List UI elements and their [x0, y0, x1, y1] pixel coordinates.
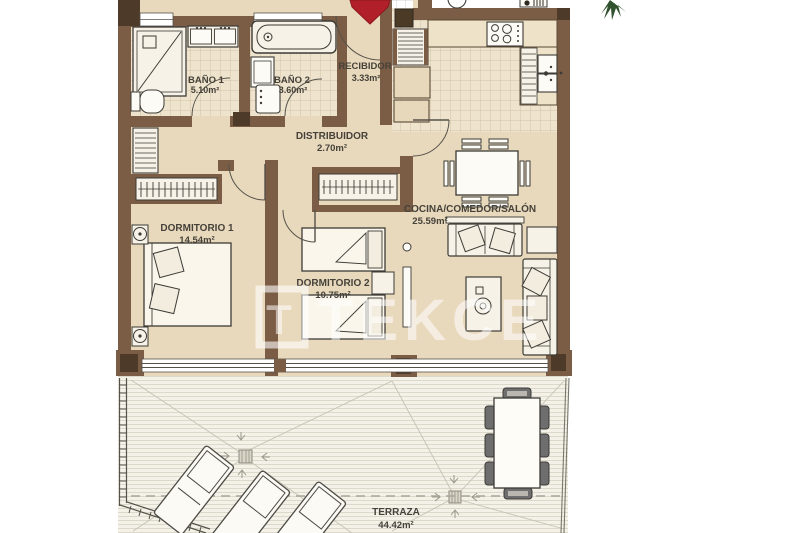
toilet — [251, 57, 274, 87]
sofa-two-seat — [448, 224, 522, 256]
floor-plan-screenshot: BAÑO 1 5.10m² BAÑO 2 3.60m² RECIBIDOR 3.… — [0, 0, 800, 533]
double-bed — [144, 243, 231, 326]
room-area-recibidor: 3.33m² — [352, 73, 381, 83]
pantry-shelves — [393, 29, 428, 65]
wall-fixture — [403, 243, 411, 251]
wardrobe — [319, 174, 397, 200]
watermark-logo-letter: T — [266, 296, 298, 343]
shower — [133, 27, 186, 96]
toilet — [131, 90, 164, 113]
laundry-sink-icon — [520, 0, 547, 7]
tall-cabinet — [395, 9, 413, 27]
nightstand — [132, 327, 148, 346]
drying-rack — [521, 48, 537, 104]
room-area-salon: 25.59m² — [412, 216, 447, 227]
wardrobe — [131, 174, 222, 204]
stairwell-floor — [392, 0, 413, 8]
room-label-terraza: TERRAZA — [372, 507, 420, 518]
outdoor-table — [494, 398, 540, 488]
drain-icon — [239, 450, 252, 463]
side-table — [527, 227, 557, 253]
floor-plan-canvas: BAÑO 1 5.10m² BAÑO 2 3.60m² RECIBIDOR 3.… — [0, 0, 800, 533]
room-label-dormitorio1: DORMITORIO 1 — [160, 223, 234, 234]
nightstand — [132, 225, 148, 244]
watermark: T TEKCE — [259, 288, 545, 353]
pillow — [368, 231, 382, 268]
pillow — [149, 284, 179, 314]
plant-icon — [601, 0, 626, 20]
window — [140, 13, 173, 26]
watermark-text: TEKCE — [318, 288, 545, 353]
room-area-bano2: 3.60m² — [279, 85, 308, 95]
room-area-dormitorio1: 14.54m² — [179, 235, 214, 246]
terrace — [118, 376, 569, 533]
room-label-recibidor: RECIBIDOR — [338, 61, 391, 72]
dining-table — [456, 151, 518, 195]
washbasin — [256, 85, 280, 113]
room-area-terraza: 44.42m² — [378, 520, 413, 531]
console-shelf — [446, 217, 524, 223]
cooktop — [487, 22, 523, 46]
outdoor-dining-set — [485, 388, 549, 499]
cabinet — [394, 67, 430, 98]
room-label-salon: COCINA/COMEDOR/SALÓN — [404, 202, 536, 215]
double-vanity — [188, 26, 238, 47]
room-label-distribuidor: DISTRIBUIDOR — [296, 131, 369, 142]
drain-icon — [449, 491, 461, 503]
room-area-bano1: 5.10m² — [191, 85, 220, 95]
cabinet — [394, 100, 429, 122]
window-wall-south — [142, 359, 548, 372]
bathtub — [252, 21, 336, 53]
window-mullion — [274, 359, 286, 372]
room-area-distribuidor: 2.70m² — [317, 143, 347, 154]
shelf-closet — [133, 128, 158, 173]
